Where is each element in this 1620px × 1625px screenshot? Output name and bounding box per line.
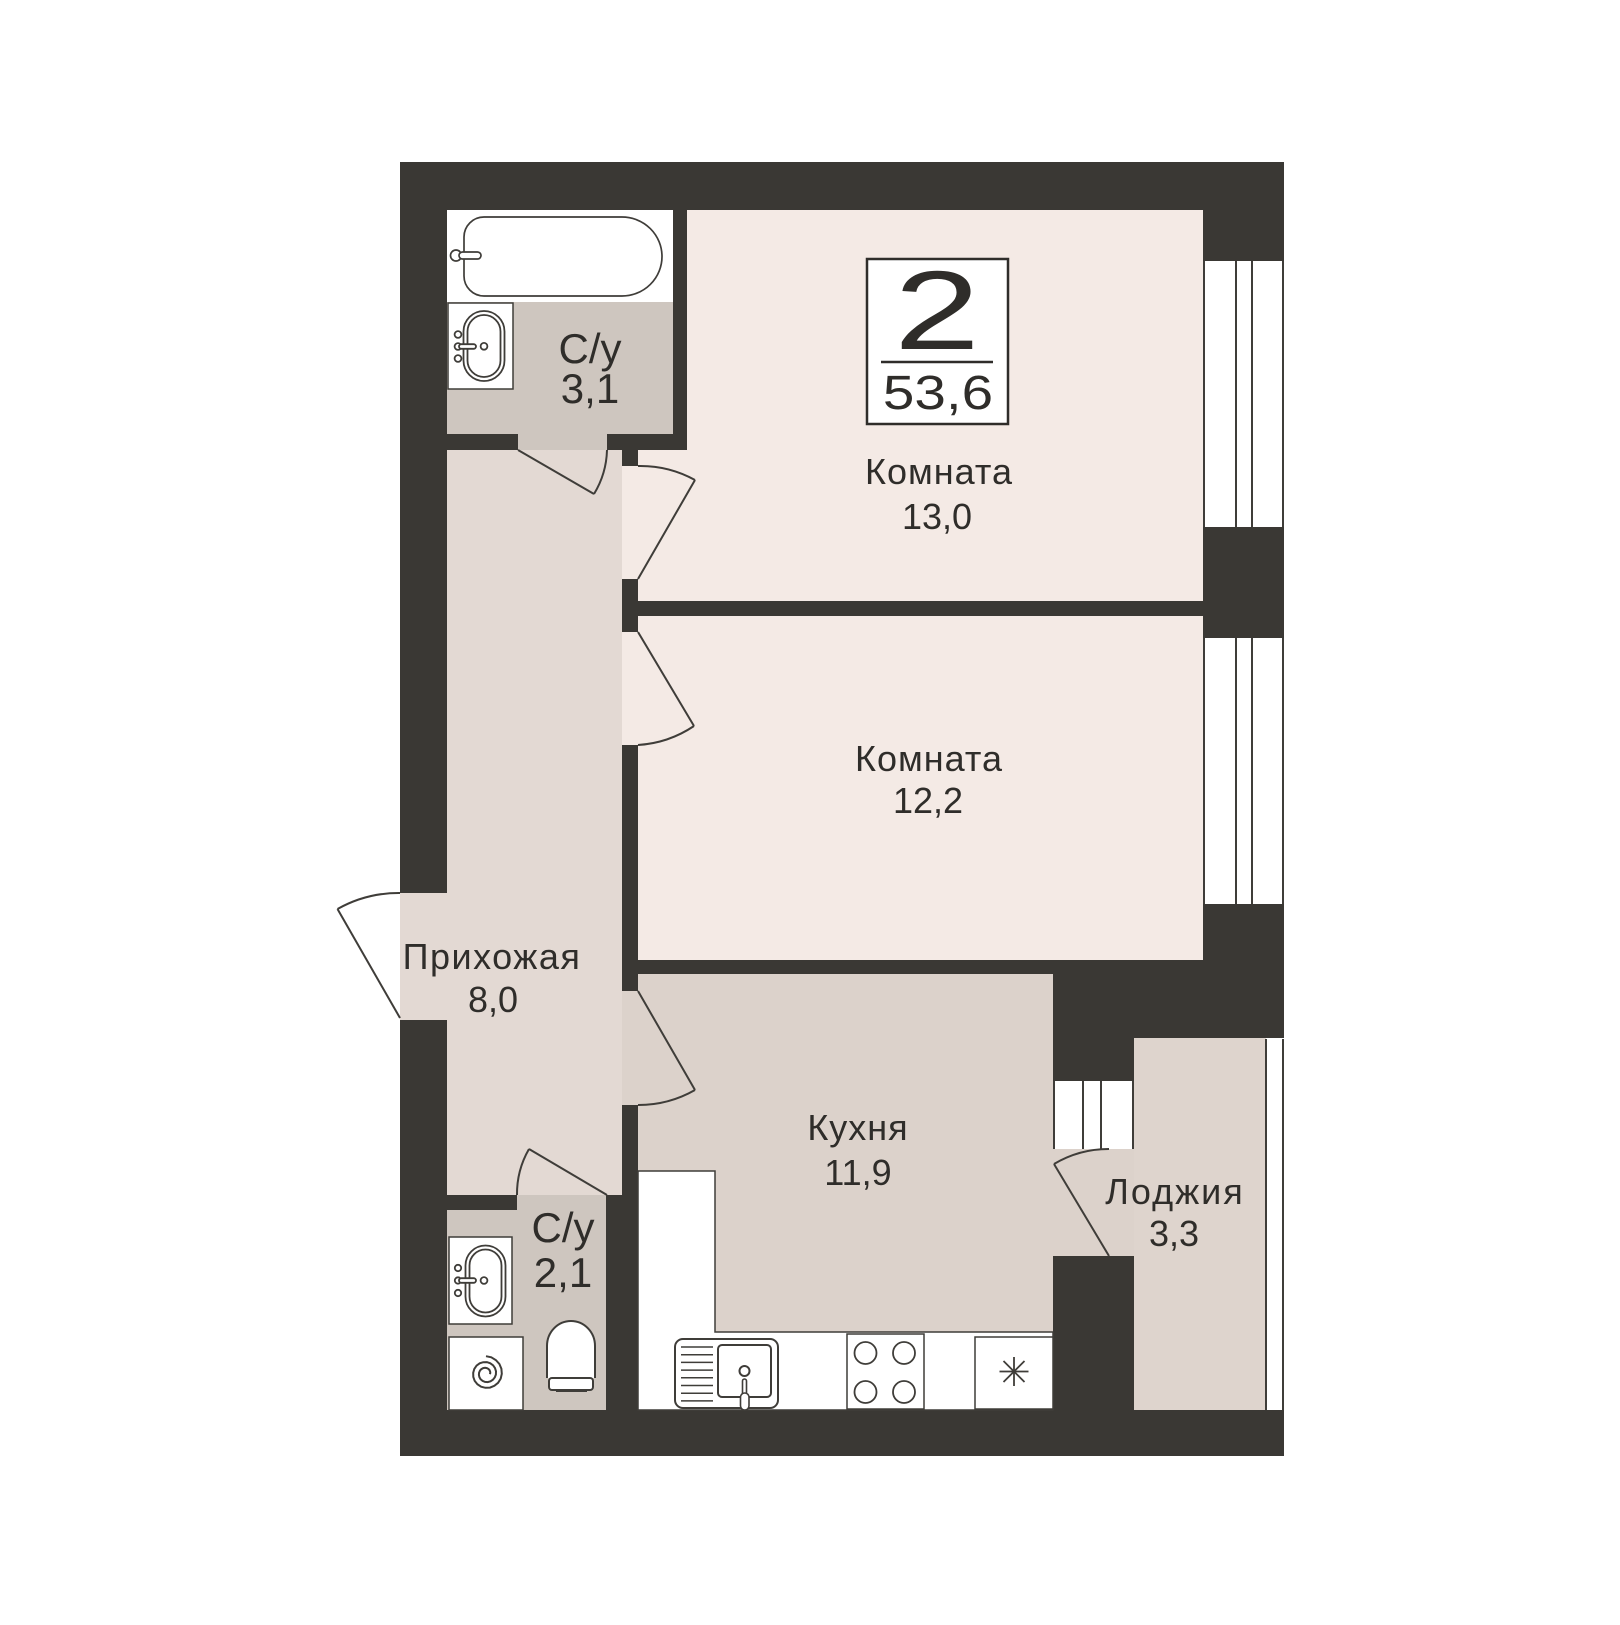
svg-text:8,0: 8,0	[468, 979, 518, 1020]
svg-text:3,3: 3,3	[1149, 1213, 1199, 1254]
svg-text:11,9: 11,9	[824, 1152, 891, 1193]
svg-text:53,6: 53,6	[883, 366, 993, 420]
svg-text:2: 2	[894, 248, 980, 373]
svg-text:12,2: 12,2	[893, 780, 963, 821]
svg-text:13,0: 13,0	[902, 496, 972, 537]
svg-text:Комната: Комната	[855, 738, 1003, 779]
svg-text:Лоджия: Лоджия	[1105, 1171, 1245, 1212]
svg-text:2,1: 2,1	[534, 1249, 592, 1296]
svg-text:Прихожая: Прихожая	[403, 936, 582, 977]
svg-text:Комната: Комната	[865, 451, 1013, 492]
svg-text:С/у: С/у	[532, 1204, 595, 1251]
svg-text:3,1: 3,1	[561, 365, 619, 412]
svg-text:Кухня: Кухня	[807, 1107, 908, 1148]
